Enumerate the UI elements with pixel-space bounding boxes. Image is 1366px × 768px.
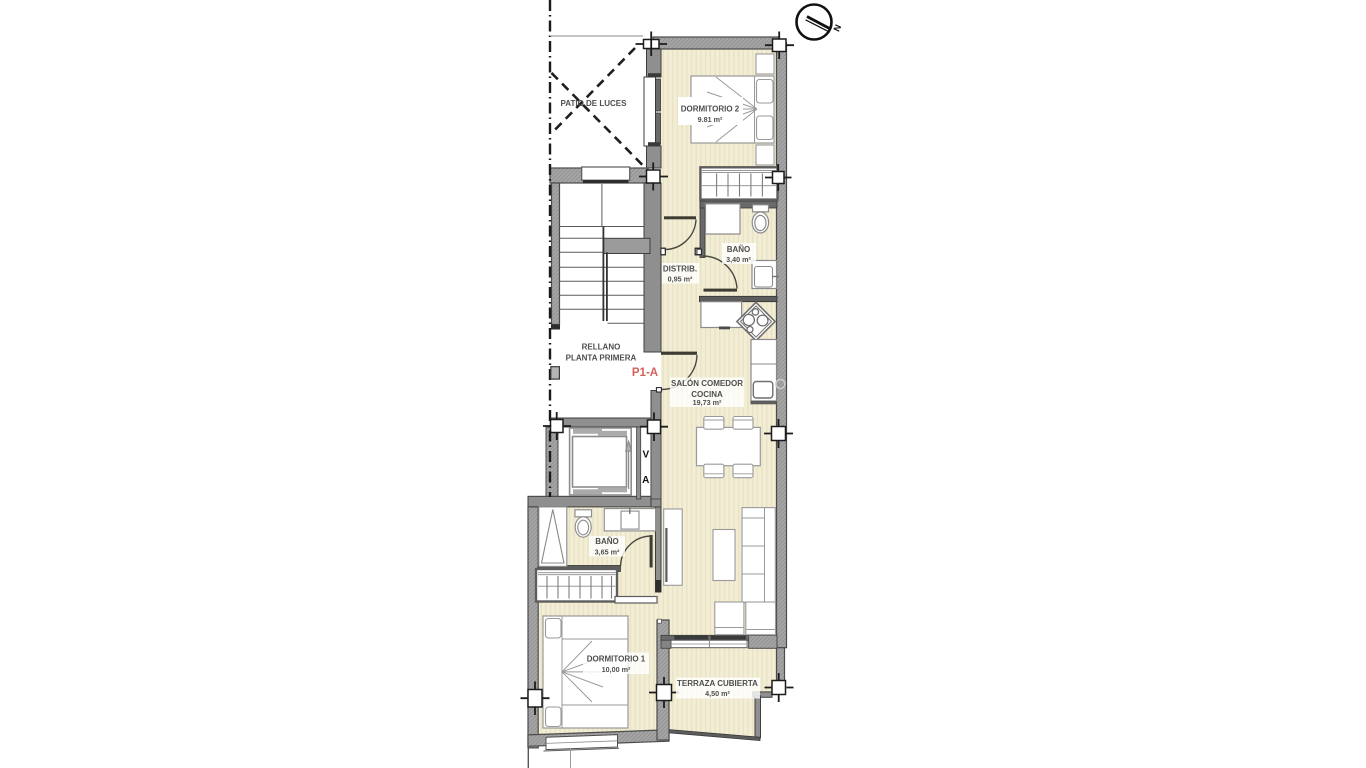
svg-text:DORMITORIO 2: DORMITORIO 2 bbox=[681, 105, 740, 114]
svg-text:TERRAZA CUBIERTA: TERRAZA CUBIERTA bbox=[677, 679, 758, 688]
svg-text:PATIO DE LUCES: PATIO DE LUCES bbox=[561, 99, 628, 108]
svg-text:4,50 m²: 4,50 m² bbox=[705, 689, 730, 698]
svg-text:BAÑO: BAÑO bbox=[727, 245, 751, 254]
svg-text:N: N bbox=[831, 23, 843, 33]
svg-text:10,00 m²: 10,00 m² bbox=[602, 665, 631, 674]
svg-text:9.81 m²: 9.81 m² bbox=[698, 115, 723, 124]
svg-text:V: V bbox=[642, 450, 649, 461]
svg-text:19,73 m²: 19,73 m² bbox=[693, 398, 722, 407]
svg-text:P1-A: P1-A bbox=[632, 367, 658, 379]
svg-text:3,65 m²: 3,65 m² bbox=[595, 548, 620, 557]
svg-text:DISTRIB.: DISTRIB. bbox=[663, 265, 697, 274]
svg-text:DORMITORIO 1: DORMITORIO 1 bbox=[587, 655, 646, 664]
svg-text:BAÑO: BAÑO bbox=[595, 537, 619, 546]
svg-text:RELLANO: RELLANO bbox=[582, 343, 621, 352]
svg-text:0,95 m²: 0,95 m² bbox=[668, 275, 693, 284]
svg-text:PLANTA PRIMERA: PLANTA PRIMERA bbox=[566, 354, 637, 363]
svg-text:SALÓN COMEDOR: SALÓN COMEDOR bbox=[671, 379, 743, 388]
svg-text:A: A bbox=[642, 475, 649, 486]
svg-text:3,40 m²: 3,40 m² bbox=[726, 255, 751, 264]
